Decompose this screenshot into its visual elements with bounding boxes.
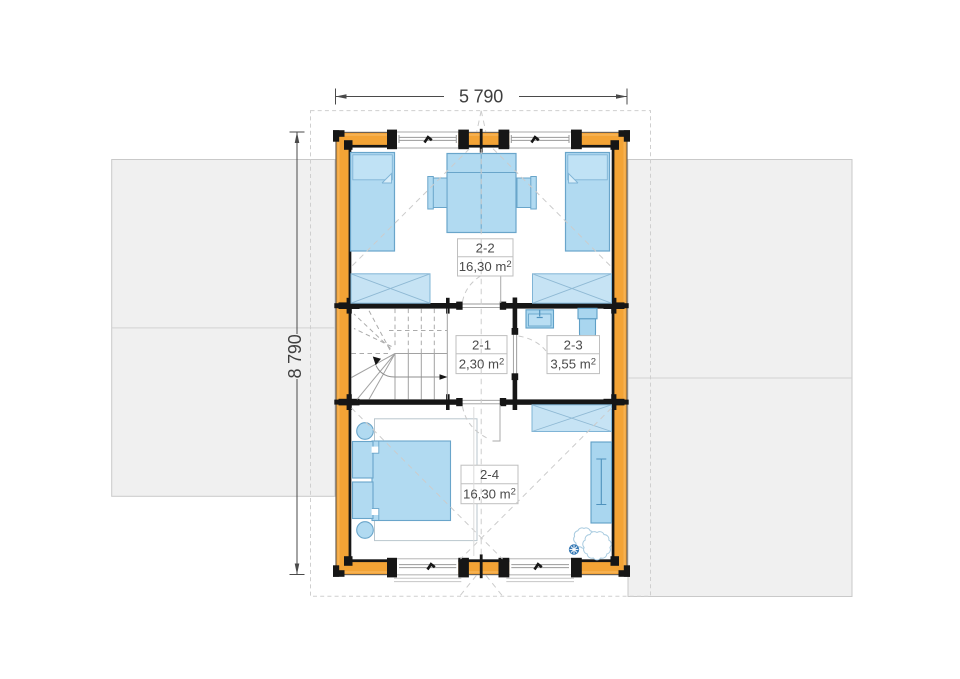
svg-text:2-1: 2-1 bbox=[472, 337, 491, 352]
svg-text:2-2: 2-2 bbox=[476, 241, 495, 256]
svg-text:8 790: 8 790 bbox=[285, 334, 305, 378]
svg-text:5 790: 5 790 bbox=[459, 87, 503, 107]
svg-text:3,55 m2: 3,55 m2 bbox=[550, 356, 596, 371]
svg-text:2-3: 2-3 bbox=[564, 337, 583, 352]
svg-text:16,30 m2: 16,30 m2 bbox=[459, 259, 512, 274]
svg-text:2-4: 2-4 bbox=[480, 467, 499, 482]
svg-text:2,30 m2: 2,30 m2 bbox=[459, 356, 505, 371]
svg-text:16,30 m2: 16,30 m2 bbox=[463, 486, 516, 501]
